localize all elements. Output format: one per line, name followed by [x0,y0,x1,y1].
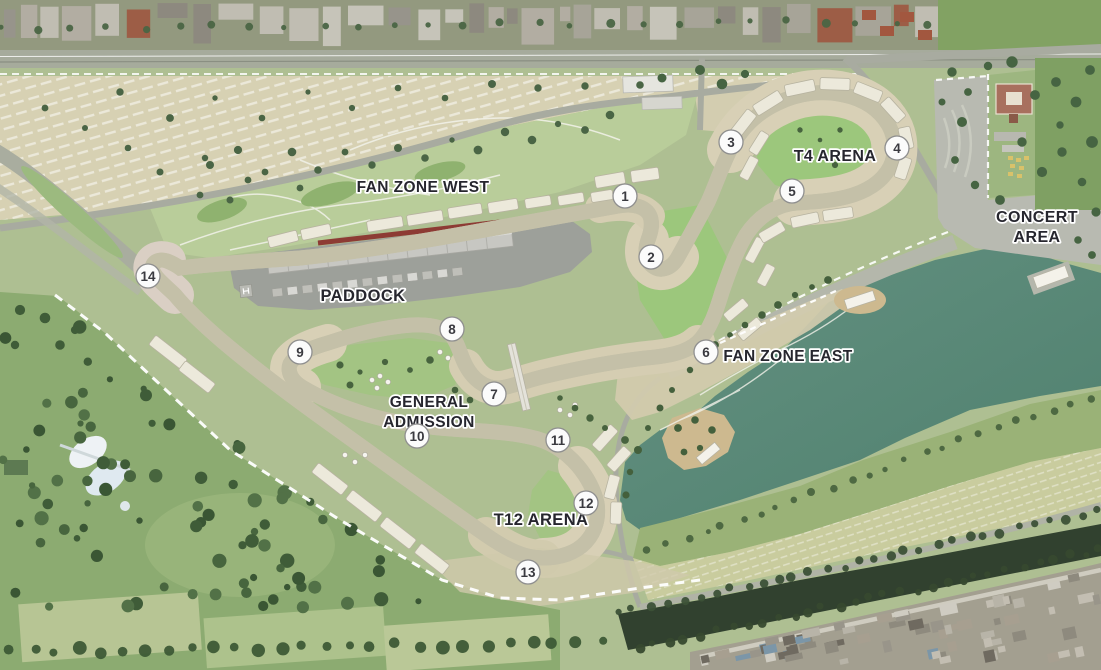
turn-marker-6: 6 [694,340,718,364]
svg-text:T4 ARENA: T4 ARENA [794,148,877,165]
turn-marker-3: 3 [719,130,743,154]
svg-text:5: 5 [788,184,796,199]
zone-label-fan-zone-west: FAN ZONE WEST [357,179,490,196]
turn-marker-14: 14 [136,264,160,288]
zone-label-t12-arena: T12 ARENA [494,511,589,529]
turn-marker-4: 4 [885,136,909,160]
turn-marker-8: 8 [440,317,464,341]
svg-text:2: 2 [647,250,655,265]
svg-text:4: 4 [893,141,901,156]
svg-text:AREA: AREA [1014,229,1061,246]
turn-marker-2: 2 [639,245,663,269]
circuit-map: FAN ZONE WESTT4 ARENACONCERTAREAPADDOCKF… [0,0,1101,670]
svg-text:FAN ZONE EAST: FAN ZONE EAST [723,348,852,365]
turn-marker-1: 1 [613,184,637,208]
svg-text:T12 ARENA: T12 ARENA [494,511,589,529]
svg-text:6: 6 [702,345,710,360]
svg-text:11: 11 [551,433,566,448]
zone-label-t4-arena: T4 ARENA [794,148,877,165]
turn-marker-11: 11 [546,428,570,452]
svg-text:3: 3 [727,135,735,150]
helipad [239,284,252,297]
turn-marker-10: 10 [405,424,429,448]
turn-marker-13: 13 [516,560,540,584]
svg-text:14: 14 [140,269,156,284]
svg-text:ADMISSION: ADMISSION [383,414,474,431]
turn-marker-5: 5 [780,179,804,203]
svg-text:8: 8 [448,322,456,337]
zone-label-paddock: PADDOCK [321,287,406,305]
turn-marker-9: 9 [288,340,312,364]
turn-marker-12: 12 [574,491,598,515]
svg-text:9: 9 [296,345,304,360]
svg-text:PADDOCK: PADDOCK [321,287,406,305]
turn-marker-7: 7 [482,382,506,406]
svg-text:12: 12 [578,496,593,511]
svg-text:13: 13 [520,565,536,580]
zone-label-fan-zone-east: FAN ZONE EAST [723,348,852,365]
svg-text:CONCERT: CONCERT [996,209,1078,226]
svg-text:1: 1 [621,189,629,204]
svg-text:FAN ZONE WEST: FAN ZONE WEST [357,179,490,196]
svg-text:GENERAL: GENERAL [390,394,469,411]
svg-text:7: 7 [490,387,498,402]
svg-text:10: 10 [409,429,424,444]
